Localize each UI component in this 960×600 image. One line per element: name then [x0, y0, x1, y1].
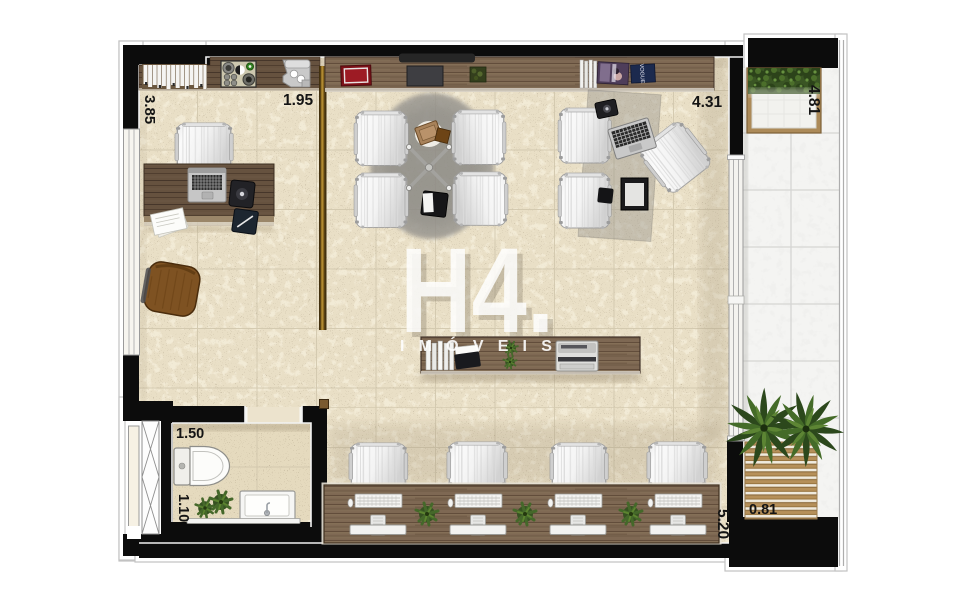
svg-text:IMÓVEIS: IMÓVEIS — [400, 336, 566, 355]
svg-text:VOGUE: VOGUE — [638, 63, 645, 83]
svg-text:4.31: 4.31 — [692, 94, 723, 111]
svg-text:0.81: 0.81 — [749, 502, 777, 518]
svg-text:3.85: 3.85 — [141, 95, 158, 124]
svg-text:1.95: 1.95 — [283, 92, 314, 109]
svg-text:5.20: 5.20 — [714, 509, 731, 539]
svg-text:1.50: 1.50 — [176, 426, 204, 442]
svg-text:1.10: 1.10 — [175, 494, 191, 522]
svg-text:4.81: 4.81 — [805, 85, 822, 116]
